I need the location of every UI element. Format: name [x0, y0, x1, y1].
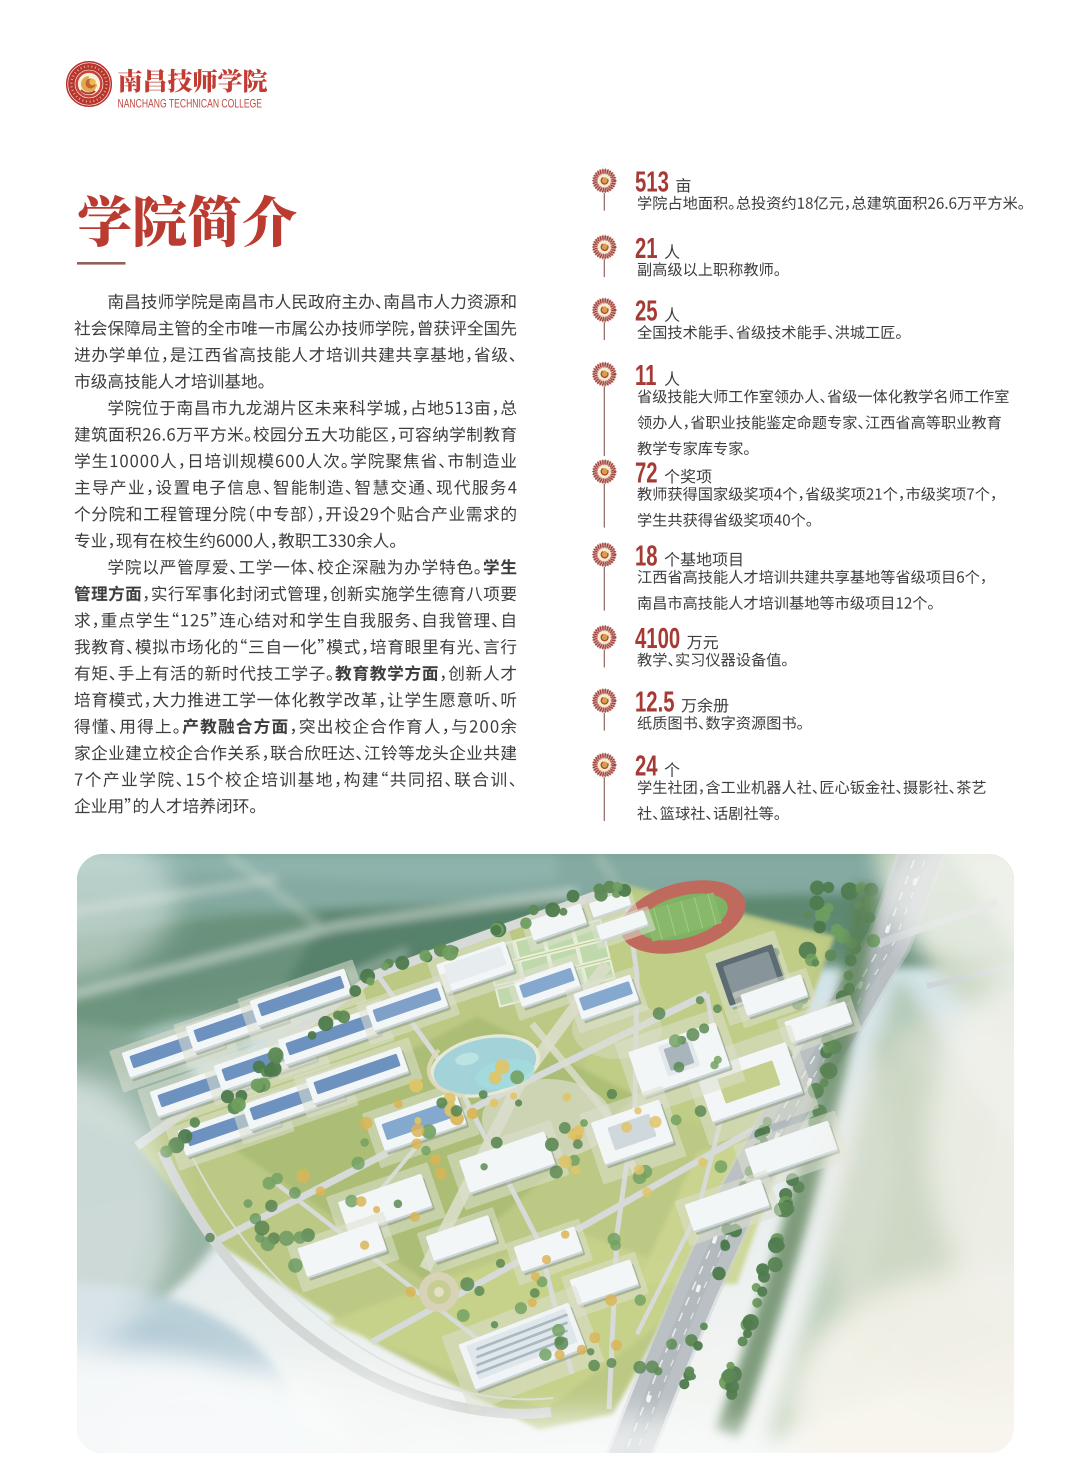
svg-text:4100: 4100	[635, 623, 680, 655]
svg-text:25: 25	[635, 295, 658, 327]
svg-text:18: 18	[635, 540, 658, 572]
svg-text:11: 11	[635, 359, 657, 391]
svg-text:NANCHANG TECHNICAN COLLEGE: NANCHANG TECHNICAN COLLEGE	[118, 96, 263, 110]
svg-text:24: 24	[635, 750, 658, 782]
svg-text:72: 72	[635, 457, 658, 489]
svg-text:21: 21	[635, 232, 658, 264]
svg-text:12.5: 12.5	[635, 686, 675, 718]
svg-text:513: 513	[635, 166, 669, 198]
